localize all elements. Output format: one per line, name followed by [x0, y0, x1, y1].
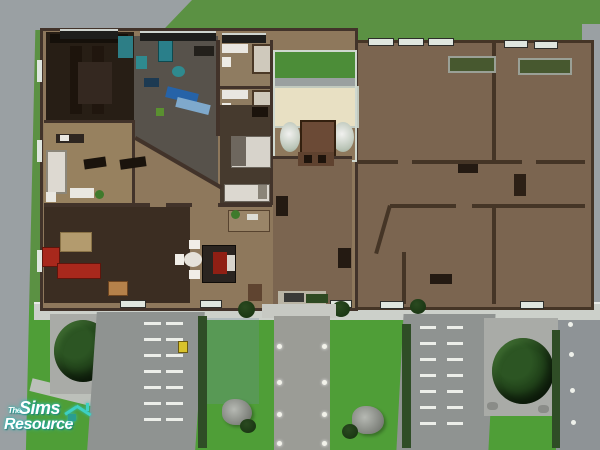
kitchen-island-stove — [213, 252, 227, 274]
path-light — [568, 322, 573, 327]
porch-mat — [284, 293, 304, 302]
rb-window — [504, 40, 528, 48]
atrium-entry-slot — [304, 155, 312, 163]
rb-wall-vertical-2 — [402, 252, 406, 304]
rb-window — [368, 38, 394, 46]
rb-wall-horizontal-2 — [390, 204, 585, 208]
bath-divider-wall — [220, 86, 270, 89]
pad-rock — [538, 405, 549, 413]
bath1-counter — [222, 44, 248, 53]
doorway-gap — [398, 160, 412, 164]
atrium-entry-slot — [318, 155, 326, 163]
living-fireplace — [108, 281, 128, 296]
path-light — [570, 388, 575, 393]
bath2-counter — [222, 90, 248, 99]
gym-teal-stool — [172, 66, 185, 77]
left-wall-window — [37, 250, 42, 272]
logo-resource: Resource — [4, 416, 73, 434]
game-viewport[interactable]: The Sims Resource — [0, 0, 600, 450]
gym-navy-bench — [144, 78, 159, 87]
atrium-glass-frame — [273, 50, 357, 162]
parking-stalls — [420, 326, 436, 430]
chimney — [86, 403, 89, 411]
bedroom-bed2-pillow — [258, 185, 267, 199]
bath1-tub — [252, 44, 272, 74]
bottom-window — [120, 300, 146, 308]
bottom-window — [380, 301, 404, 309]
kitchen-door — [248, 284, 262, 301]
bath-left-sink-counter — [70, 188, 94, 198]
path-light — [569, 352, 574, 357]
parking-stalls — [144, 322, 161, 426]
right-building-floor — [350, 40, 594, 310]
lb-top-windows — [60, 29, 118, 39]
living-sofa — [57, 263, 101, 279]
hedge-row — [198, 316, 207, 448]
parking-lot-right — [396, 314, 495, 450]
rb-window — [428, 38, 454, 46]
path-light — [322, 412, 327, 417]
bedroom-bed1-head — [231, 136, 246, 166]
path-light — [571, 420, 576, 425]
gravel-right-strip — [556, 302, 600, 450]
dining-chair — [175, 254, 184, 265]
rb-wall-vertical-3 — [492, 206, 496, 304]
parking-stalls — [447, 326, 463, 430]
rb-window-planter — [518, 58, 572, 75]
left-wall-window — [37, 60, 42, 82]
hall-floor-vent — [276, 196, 288, 216]
blue-haze — [207, 318, 259, 404]
wall-bedroom-bottom — [218, 203, 272, 207]
lb-top-windows — [222, 33, 266, 43]
dining-chair — [189, 270, 200, 279]
house-roof-icon — [64, 400, 94, 426]
bath-left-shower — [46, 150, 67, 194]
central-hall-floor — [273, 158, 352, 304]
bath1-toilet — [222, 57, 231, 67]
pad-rock — [487, 402, 498, 410]
porch-planter — [306, 294, 328, 303]
parking-stalls — [166, 322, 183, 426]
living-rug — [60, 232, 92, 252]
hedge — [410, 299, 426, 314]
path-light — [322, 344, 327, 349]
closet-floor-patch — [78, 62, 112, 104]
bottom-window — [520, 301, 544, 309]
tree — [492, 338, 554, 404]
gym-teal-shower — [158, 38, 173, 62]
bath-left-plant — [95, 190, 104, 199]
rb-window-planter — [448, 56, 496, 73]
path-light — [277, 344, 282, 349]
gym-dark-bench — [194, 46, 214, 56]
path-light — [322, 380, 327, 385]
rb-floor-vent — [458, 164, 478, 173]
closet-teal-wardrobe — [118, 36, 133, 58]
dining-table — [184, 252, 202, 267]
rock-bush — [342, 424, 358, 439]
yellow-object — [178, 341, 188, 353]
gym-trash-can — [156, 108, 164, 116]
path-light — [322, 441, 327, 446]
rb-floor-vent — [430, 274, 452, 284]
rb-window — [398, 38, 424, 46]
tsr-logo: The Sims Resource — [4, 398, 116, 448]
dining-chair — [189, 240, 200, 249]
kitchen-plant — [231, 210, 240, 219]
path-light — [277, 412, 282, 417]
path-light — [277, 441, 282, 446]
left-wall-window — [37, 140, 42, 162]
path-light — [277, 380, 282, 385]
rb-window — [534, 41, 558, 49]
doorway-gap — [456, 204, 472, 208]
bottom-window — [200, 300, 222, 308]
hedge-row — [552, 330, 560, 448]
doorway-gap — [522, 160, 536, 164]
house-body — [68, 414, 76, 421]
kitchen-sink-items — [247, 214, 258, 220]
bedroom-dresser — [252, 107, 268, 117]
bath-left-toilet — [46, 192, 56, 202]
roof-right-slope — [76, 405, 92, 417]
lb-top-windows — [140, 31, 216, 41]
rb-door-mark — [514, 174, 526, 196]
kitchen-island-counter — [227, 255, 235, 271]
hall-floor-vent — [338, 248, 351, 268]
hedge — [238, 301, 255, 318]
bath-left-counter-white — [60, 135, 69, 141]
rock-bush — [240, 419, 256, 433]
gym-teal-chair — [136, 56, 147, 69]
hedge-row — [402, 324, 411, 448]
